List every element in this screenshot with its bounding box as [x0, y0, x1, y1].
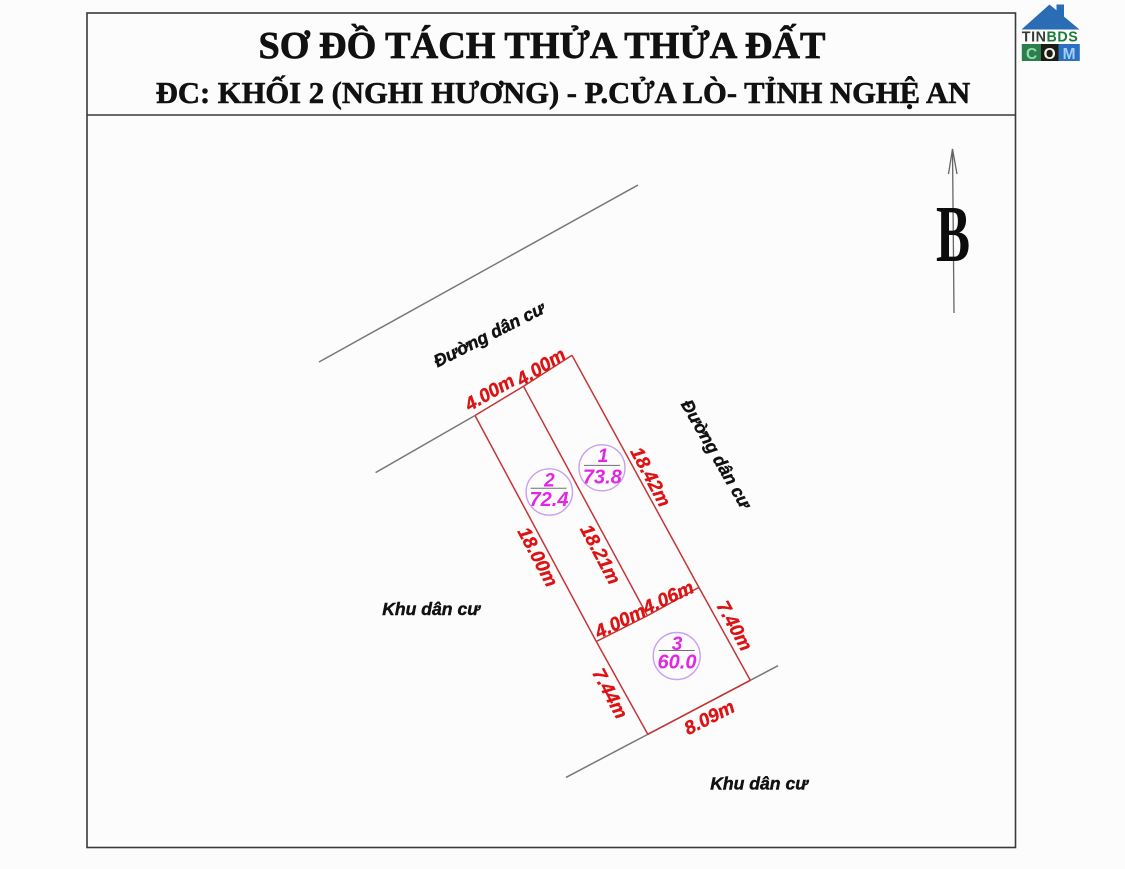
svg-text:72.4: 72.4 — [530, 489, 569, 511]
svg-text:C: C — [1026, 46, 1037, 63]
svg-text:1: 1 — [598, 446, 609, 467]
svg-text:SƠ ĐỒ TÁCH THỬA THỬA ĐẤT: SƠ ĐỒ TÁCH THỬA THỬA ĐẤT — [259, 23, 826, 67]
svg-text:Khu dân cư: Khu dân cư — [382, 599, 481, 619]
svg-text:M: M — [1063, 46, 1076, 63]
svg-text:O: O — [1044, 46, 1056, 63]
svg-text:Khu dân cư: Khu dân cư — [710, 774, 809, 794]
svg-text:73.8: 73.8 — [583, 467, 623, 489]
svg-text:TINBDS: TINBDS — [1022, 29, 1079, 45]
svg-text:60.0: 60.0 — [658, 652, 697, 674]
svg-text:B: B — [936, 189, 970, 279]
svg-text:ĐC: KHỐI 2 (NGHI HƯƠNG) - P.CỬ: ĐC: KHỐI 2 (NGHI HƯƠNG) - P.CỬA LÒ- TỈNH… — [156, 74, 970, 110]
